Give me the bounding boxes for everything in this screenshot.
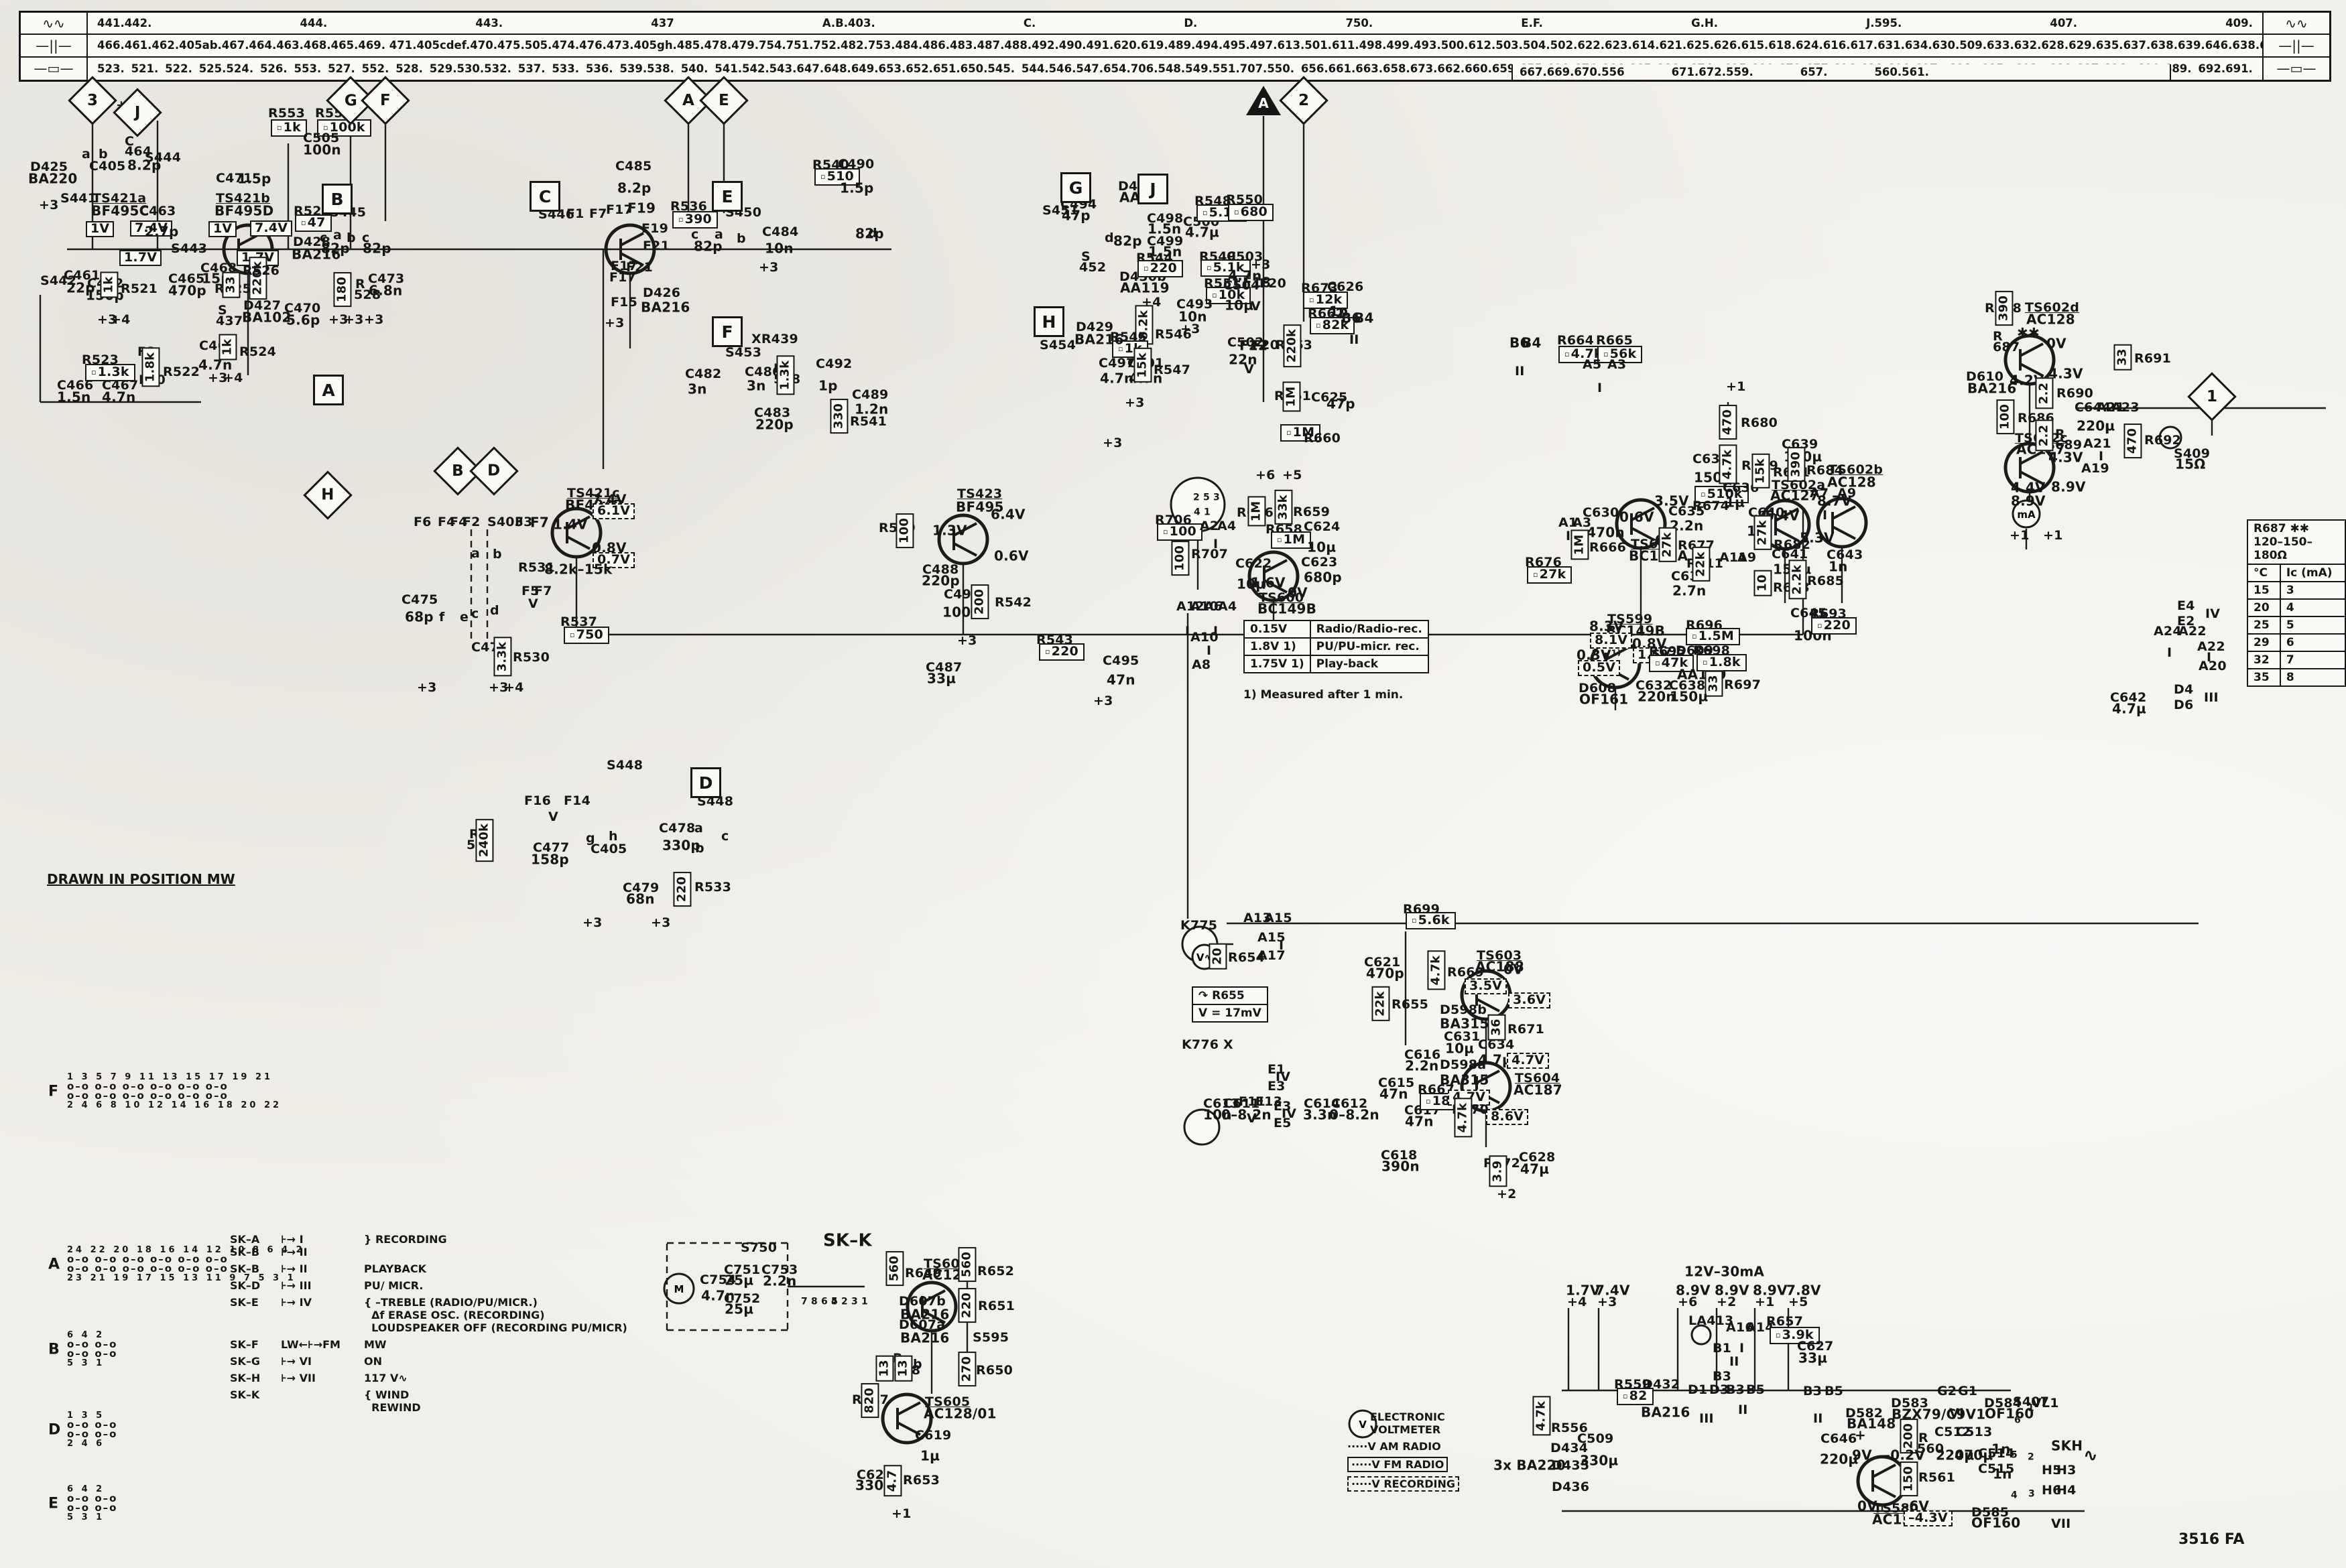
sk-roman: LW←⊦→FM	[281, 1338, 355, 1351]
schematic-label: 6.4V	[991, 508, 1026, 522]
schematic-label: 100	[1997, 399, 2015, 434]
schematic-label: 240k	[476, 819, 494, 862]
schematic-label: R546	[1155, 328, 1192, 342]
schematic-label: 15Ω	[2175, 458, 2205, 472]
schematic-label: V	[548, 811, 558, 824]
schematic-label: 2.2	[2036, 378, 2054, 409]
schematic-label: I	[2167, 647, 2172, 660]
schematic-label: 47n	[1405, 1115, 1434, 1129]
schematic-label: 8.9V	[2051, 480, 2086, 495]
schematic-label: 15k	[1134, 348, 1152, 383]
schematic-label: R561	[1918, 1472, 1955, 1485]
voltmeter-mode: ·····V RECORDING	[1347, 1476, 1459, 1492]
schematic-label: 330µ	[1580, 1454, 1618, 1468]
schematic-label: +3	[1125, 397, 1145, 410]
r687-bias-table: R687 ✱✱120–150–180Ω °CIc (mA)15320425529…	[2247, 519, 2346, 687]
connector-letter: H	[321, 486, 334, 504]
schematic-label: +3	[957, 635, 977, 648]
schematic-label: 33µ	[927, 672, 956, 686]
schematic-label: –0.2V	[1884, 1449, 1925, 1463]
schematic-label: e	[460, 611, 469, 625]
schematic-label: D6	[2174, 699, 2193, 712]
ma-meter-label: mA	[2017, 509, 2036, 521]
schematic-label: IV	[2205, 608, 2220, 621]
schematic-label: AC187	[1514, 1084, 1562, 1098]
schematic-label: C630	[1583, 507, 1619, 520]
schematic-label: 4.7k	[1719, 445, 1737, 484]
schematic-label: +2	[1497, 1188, 1517, 1201]
switch-contacts: o–o o–o o–o o–o o–o o–o	[67, 1264, 305, 1274]
schematic-label: 47p	[1326, 397, 1355, 411]
schematic-label: OF161	[1579, 693, 1628, 707]
connector-letter: 3	[87, 92, 98, 109]
schematic-label: R692	[2144, 434, 2181, 448]
schematic-label: R680	[1741, 417, 1778, 430]
connector-letter: B	[452, 462, 464, 480]
schematic-label: II	[1729, 1356, 1739, 1369]
schematic-label: R666	[1589, 541, 1626, 555]
schematic-label: R541	[850, 415, 887, 429]
schematic-label: 2.2k	[1789, 560, 1807, 600]
schematic-label: R651	[978, 1300, 1015, 1313]
schematic-label: 220p	[922, 574, 960, 588]
schematic-label: SKH	[2051, 1439, 2083, 1453]
sk-desc: PU/ MICR.	[364, 1279, 423, 1292]
schematic-label: 452	[1079, 261, 1106, 275]
schematic-label: A22	[2178, 625, 2207, 639]
voltmeter-mode: ·····V AM RADIO	[1347, 1440, 1441, 1453]
schematic-label: 15k	[1752, 454, 1770, 488]
schematic-label: B5	[1825, 1385, 1843, 1398]
schematic-label: BA220	[28, 172, 77, 186]
voltmeter-legend: ELECTRONIC VOLTMETER·····V AM RADIO·····…	[1347, 1411, 1459, 1496]
schematic-label: D426	[643, 287, 680, 300]
mode-table-note: 1) Measured after 1 min.	[1243, 688, 1403, 702]
schematic-label: 0V	[1503, 963, 1524, 977]
schematic-label: 270	[959, 1352, 977, 1386]
schematic-label: 4.7	[884, 1465, 902, 1497]
section-marker-f: F	[712, 316, 743, 347]
schematic-label: V	[1251, 300, 1261, 314]
schematic-label: D1	[1688, 1384, 1707, 1397]
schematic-label: 7.4V	[250, 220, 292, 237]
sk-desc: { WIND REWIND	[364, 1388, 421, 1414]
schematic-label: F7	[589, 208, 607, 221]
schematic-label: BA216	[900, 1331, 949, 1346]
switch-contacts: o–o o–o	[67, 1430, 117, 1439]
schematic-label: 820	[861, 1383, 879, 1418]
schematic-label: 22k	[1692, 547, 1711, 582]
schematic-label: B1	[1713, 1342, 1731, 1356]
schematic-label: C484	[762, 226, 798, 239]
schematic-label: +1	[891, 1508, 912, 1521]
schematic-label: H3	[2056, 1464, 2077, 1478]
schematic-label: 390n	[1381, 1160, 1420, 1174]
schematic-label: V	[528, 598, 538, 611]
schematic-label: 68p	[405, 610, 434, 625]
schematic-label: R653	[903, 1474, 940, 1488]
schematic-label: BA216	[1641, 1406, 1690, 1420]
motor-label: M	[674, 1283, 684, 1295]
schematic-label: C495	[1103, 655, 1139, 668]
schematic-label: ✱✱	[2017, 326, 2040, 340]
transistor-leads	[2020, 344, 2043, 376]
schematic-label: E3	[1268, 1080, 1286, 1094]
mode-row: 1.8V 1)PU/PU-micr. rec.	[1244, 638, 1428, 655]
switch-letter: E	[48, 1495, 58, 1512]
schematic-label: 220	[959, 1288, 977, 1323]
voltmeter-title-2: VOLTMETER	[1370, 1423, 1440, 1436]
schematic-label: R685	[1807, 575, 1844, 588]
schematic-label: +1	[1726, 381, 1746, 394]
schematic-label: 2.2n	[763, 1275, 796, 1289]
schematic-label: +	[1855, 1429, 1866, 1443]
schematic-label: +6	[1678, 1296, 1698, 1309]
schematic-label: 2 5 3	[1193, 493, 1220, 503]
schematic-label: AC128/01	[924, 1407, 997, 1421]
schematic-label: S454	[1040, 339, 1076, 352]
schematic-label: 47n	[1379, 1088, 1408, 1102]
schematic-label: +5	[1282, 469, 1302, 482]
schematic-label: 1n	[1993, 1467, 2012, 1482]
schematic-label: 3.5V	[1465, 978, 1507, 994]
schematic-sheet: ∿∿ —||— —▭— 441.442.444.443.437A.B.403.C…	[0, 0, 2346, 1568]
schematic-label: C513	[1956, 1426, 1992, 1439]
schematic-label: 1n	[1991, 1443, 2011, 1457]
schematic-label: 82p	[321, 242, 350, 256]
switch-contacts: o–o o–o	[67, 1350, 117, 1359]
schematic-label: C646	[1820, 1433, 1857, 1446]
schematic-label: 470	[2124, 423, 2142, 458]
schematic-label: 4.7µ	[2112, 702, 2146, 716]
schematic-label: 0.5V	[1578, 660, 1620, 676]
schematic-label: A20	[2199, 660, 2227, 673]
schematic-label: 560	[959, 1247, 977, 1282]
r687-row: 358	[2247, 669, 2345, 686]
schematic-label: C405	[591, 843, 627, 856]
schematic-label: 10µ	[1445, 1042, 1474, 1056]
schematic-label: 25µ	[725, 1303, 753, 1317]
schematic-label: 2.7p	[145, 225, 179, 239]
schematic-label: 1.5M	[1686, 628, 1740, 645]
schematic-label: C482	[685, 368, 721, 381]
schematic-label: A19	[2081, 462, 2109, 476]
schematic-label: C475	[402, 594, 438, 607]
schematic-label: a	[715, 228, 723, 242]
schematic-label: C490	[838, 158, 874, 172]
schematic-label: G1	[1958, 1385, 1977, 1398]
schematic-label: 5.6p	[286, 314, 320, 328]
schematic-label: 0.6V	[994, 549, 1029, 564]
schematic-label: I	[1739, 1342, 1744, 1356]
schematic-label: 1.6V	[1251, 576, 1286, 590]
r687-row: 255	[2247, 616, 2345, 634]
sk-desc: MW	[364, 1338, 387, 1351]
section-marker-g: G	[1060, 172, 1091, 203]
schematic-label: +4	[1567, 1296, 1587, 1309]
schematic-label: 4.7V	[1507, 1053, 1549, 1069]
schematic-label: 750	[564, 627, 609, 644]
schematic-label: C626	[1327, 281, 1363, 294]
sk-desc: 117 V∿	[364, 1372, 408, 1384]
voltmeter-mode: ·····V FM RADIO	[1347, 1457, 1448, 1472]
schematic-label: 687	[1993, 341, 2020, 354]
sk-key: SK–G	[230, 1355, 271, 1368]
schematic-label: F20	[1259, 277, 1286, 291]
schematic-label: 470n	[1587, 526, 1625, 540]
schematic-label: 1.8k	[142, 348, 160, 387]
schematic-label: 0V	[2046, 337, 2066, 351]
schematic-label: 82p	[363, 242, 391, 256]
schematic-label: d	[1105, 232, 1114, 245]
connector-letter: D	[487, 462, 500, 480]
schematic-label: C635	[1668, 505, 1705, 519]
switch-letter: F	[48, 1083, 58, 1100]
schematic-label: 3n	[688, 383, 707, 397]
schematic-label: +6	[1255, 469, 1276, 482]
schematic-label: 0V	[1288, 586, 1308, 600]
schematic-label: S448	[607, 759, 643, 773]
schematic-label: C509	[1577, 1433, 1613, 1446]
schematic-label: 2.2n	[1405, 1059, 1438, 1073]
transistor-leads	[1833, 507, 1855, 539]
schematic-label: VII	[2051, 1518, 2071, 1531]
schematic-label: 560	[886, 1251, 904, 1286]
schematic-label: f	[439, 611, 444, 625]
schematic-label: F19	[627, 202, 656, 216]
schematic-label: F17	[609, 271, 636, 285]
section-marker-a: A	[313, 375, 344, 405]
schematic-label: XR439	[751, 333, 798, 346]
schematic-label: 6	[2014, 1416, 2021, 1426]
schematic-label: +3	[344, 314, 364, 327]
schematic-label: E5	[1274, 1117, 1292, 1130]
schematic-label: a	[694, 822, 703, 836]
schematic-label: +3	[1093, 695, 1113, 708]
schematic-label: C623	[1301, 556, 1337, 570]
schematic-label: 1.3V	[932, 524, 967, 538]
drawn-position-note: DRAWN IN POSITION MW	[47, 871, 235, 887]
transistor-leads	[1873, 1465, 1896, 1497]
schematic-label: G2	[1937, 1385, 1957, 1398]
schematic-label: C634	[1478, 1039, 1514, 1052]
schematic-label: R697	[1724, 679, 1761, 692]
schematic-label: 1V	[86, 221, 114, 237]
schematic-label: 437	[216, 315, 243, 328]
schematic-label: 1.3k	[777, 356, 795, 395]
schematic-label: +3	[605, 317, 625, 330]
schematic-label: +3	[1597, 1296, 1617, 1309]
schematic-label: +5	[1788, 1296, 1808, 1309]
schematic-label: A4	[1218, 600, 1237, 614]
section-marker-e: E	[712, 181, 743, 212]
schematic-label: F16	[524, 795, 551, 808]
sk-key: SK–H	[230, 1372, 271, 1384]
schematic-label: 4.7k	[1428, 951, 1446, 990]
voltmeter-mode-row: ·····V AM RADIO	[1347, 1440, 1459, 1453]
schematic-label: 150µ	[1670, 690, 1708, 704]
schematic-label: 1n	[1829, 560, 1848, 574]
schematic-label: H4	[2056, 1484, 2077, 1498]
schematic-label: +3	[364, 314, 384, 327]
schematic-label: 4.7k	[1455, 1098, 1473, 1138]
schematic-label: R652	[977, 1265, 1014, 1279]
schematic-label: AA119	[1120, 281, 1170, 296]
schematic-label: BF495D	[214, 204, 273, 218]
schematic-label: C754	[700, 1274, 736, 1287]
connector-letter: 1	[2207, 388, 2217, 405]
schematic-label: 6.8n	[369, 284, 402, 298]
connector-letter: G	[345, 92, 357, 109]
connector-a: A	[1246, 86, 1281, 115]
connector-letter: E	[719, 92, 729, 109]
r687-col2: Ic (mA)	[2280, 564, 2345, 582]
schematic-label: 3.9	[1489, 1156, 1507, 1187]
sk-legend-row: SK–E⊦→ IV{ –TREBLE (RADIO/PU/MICR.) Δf E…	[230, 1296, 627, 1334]
schematic-label: A9	[1737, 551, 1756, 565]
schematic-label: R522	[163, 366, 200, 379]
sk-legend-row: SK–H⊦→ VII117 V∿	[230, 1372, 627, 1384]
switch-letter: B	[48, 1341, 60, 1358]
schematic-label: B5	[1746, 1384, 1765, 1397]
schematic-label: 0.6V	[1619, 511, 1654, 525]
schematic-label: C624	[1304, 521, 1340, 534]
voltmeter-title-1: ELECTRONIC	[1370, 1411, 1445, 1423]
sk-desc: { –TREBLE (RADIO/PU/MICR.) Δf ERASE OSC.…	[364, 1296, 627, 1334]
schematic-label: C489	[852, 389, 888, 402]
schematic-label: 47p	[1062, 209, 1091, 223]
schematic-label: 4.3V	[2048, 451, 2083, 465]
schematic-label: 20	[1209, 943, 1227, 969]
schematic-label: 1.5n	[57, 391, 90, 405]
schematic-label: 0–8.2n	[1221, 1108, 1272, 1122]
schematic-label: 220	[1811, 617, 1857, 635]
schematic-label: 27k	[1659, 527, 1677, 562]
schematic-label: 6.1V	[593, 503, 635, 519]
switch-pins-bottom: 23 21 19 17 15 13 11 9 7 5 3 1	[67, 1273, 305, 1283]
switch-letter: D	[48, 1421, 60, 1438]
schematic-label: A21	[2083, 438, 2111, 451]
schematic-label: R521	[121, 283, 158, 296]
schematic-label: 158p	[531, 853, 569, 867]
schematic-label: A3	[1607, 358, 1626, 372]
lamp-la413-icon	[1692, 1325, 1711, 1344]
schematic-label: 47µ	[1520, 1163, 1549, 1177]
r655-measure-box: ↷ R655 V = 17mV	[1192, 986, 1268, 1023]
schematic-label: BA216	[1074, 333, 1123, 347]
schematic-label: R533	[694, 881, 731, 895]
schematic-label: S595	[973, 1331, 1009, 1345]
schematic-label: R547	[1154, 364, 1190, 377]
schematic-label: 8.6V	[1486, 1109, 1528, 1125]
schematic-label: 22k	[1372, 986, 1390, 1021]
schematic-label: I	[1566, 530, 1570, 543]
schematic-label: +2	[1717, 1296, 1737, 1309]
schematic-label: 330	[830, 399, 849, 434]
schematic-label: F1	[566, 208, 584, 221]
schematic-label: R660	[1304, 432, 1341, 446]
schematic-label: D432	[1642, 1378, 1680, 1392]
switch-letter: A	[48, 1256, 60, 1272]
schematic-label: 10	[1754, 570, 1772, 596]
schematic-label: 1M	[1571, 530, 1589, 560]
sheet-code: 3516 FA	[2178, 1531, 2244, 1548]
schematic-label: S750	[741, 1242, 777, 1255]
schematic-label: B3	[1803, 1385, 1822, 1398]
schematic-label: 10µ	[1307, 541, 1336, 555]
schematic-label: BC149B	[1257, 602, 1316, 616]
sk-desc: } RECORDING	[364, 1233, 447, 1246]
schematic-label: b	[913, 1358, 922, 1372]
schematic-label: K775	[1180, 919, 1217, 933]
schematic-label: R690	[2056, 387, 2093, 401]
sk-legend-row: SK–K{ WIND REWIND	[230, 1388, 627, 1414]
schematic-label: I	[1823, 509, 1827, 523]
schematic-label: A24	[2154, 625, 2182, 639]
switch-contacts: o–o o–o	[67, 1504, 117, 1513]
schematic-label: b	[737, 233, 746, 246]
schematic-label: 4.7µ	[1185, 226, 1219, 240]
schematic-label: 180	[334, 272, 352, 307]
schematic-label: F19	[641, 222, 668, 236]
schematic-label: I	[1185, 625, 1190, 639]
schematic-label: 1p	[818, 379, 838, 393]
schematic-label: 200	[971, 584, 989, 619]
schematic-label: C492	[816, 358, 852, 371]
schematic-label: +3	[582, 917, 603, 930]
schematic-label: 3.6V	[1508, 992, 1550, 1008]
sk-roman: ⊦→ VI	[281, 1355, 355, 1368]
schematic-label: F15	[611, 296, 637, 310]
r687-title: R687 ✱✱120–150–180Ω	[2247, 520, 2345, 564]
switch-diagram-f: F 1 3 5 7 9 11 13 15 17 19 21 o–o o–o o–…	[67, 1072, 282, 1110]
schematic-label: 3	[2028, 1490, 2035, 1500]
schematic-label: BA216	[641, 301, 690, 315]
sk-legend-row: SK–FLW←⊦→FMMW	[230, 1338, 627, 1351]
section-marker-j: J	[1137, 174, 1168, 204]
schematic-label: 1.7V	[119, 250, 162, 266]
schematic-label: 47	[295, 214, 332, 232]
schematic-label: +1	[2043, 529, 2063, 543]
schematic-label: 1M	[1248, 497, 1266, 527]
switch-pins-bottom: 5 3 1	[67, 1512, 117, 1522]
schematic-label: +3	[1103, 437, 1123, 450]
mode-row: 1.75V 1)Play-back	[1244, 655, 1428, 673]
schematic-label: B3	[1713, 1370, 1731, 1384]
connector-letter: A	[682, 92, 694, 109]
schematic-label: II	[1515, 365, 1525, 379]
schematic-label: 4 1	[1194, 508, 1211, 518]
schematic-label: C478	[659, 822, 695, 836]
schematic-label: 0–8.2n	[1329, 1108, 1379, 1122]
schematic-label: 100	[1172, 541, 1190, 576]
schematic-label: A15	[1264, 912, 1292, 925]
schematic-label: D4	[2174, 683, 2193, 697]
schematic-label: 680p	[1304, 571, 1342, 585]
r687-row: 153	[2247, 582, 2345, 599]
schematic-label: 27k	[1527, 566, 1572, 584]
schematic-label: R524	[239, 346, 276, 359]
schematic-label: +3	[651, 917, 671, 930]
schematic-label: III	[2204, 692, 2219, 705]
schematic-label: A5	[1583, 358, 1601, 372]
connector-letter: J	[135, 104, 141, 121]
r687-col1: °C	[2247, 564, 2280, 582]
schematic-label: +3	[417, 681, 437, 695]
schematic-label: C622	[1235, 558, 1272, 571]
sk-desc: PLAYBACK	[364, 1262, 426, 1275]
switch-diagram-b: B 6 4 2 o–o o–o o–o o–o 5 3 1	[67, 1330, 117, 1368]
